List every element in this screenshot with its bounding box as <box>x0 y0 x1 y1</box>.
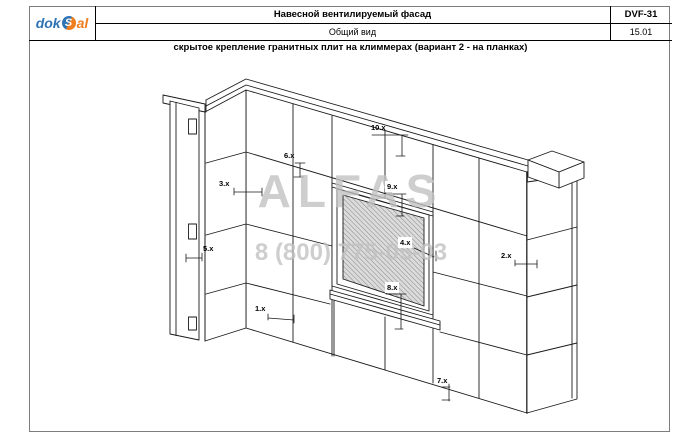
callout-10x: 10.x <box>371 123 386 132</box>
facade-left-return <box>205 90 246 341</box>
callout-3x: 3.x <box>219 179 229 188</box>
callout-5x: 5.x <box>203 244 213 253</box>
callout-8x: 8.x <box>386 283 398 292</box>
callout-6x: 6.x <box>284 151 294 160</box>
callout-4x: 4.x <box>399 238 411 247</box>
callout-1x: 1.x <box>255 304 265 313</box>
facade-axonometric-drawing <box>0 0 700 442</box>
callout-7x: 7.x <box>437 376 447 385</box>
callout-2x: 2.x <box>501 251 511 260</box>
pilaster-column <box>163 95 205 341</box>
facade-right-return <box>527 175 577 413</box>
callout-9x: 9.x <box>386 182 398 191</box>
